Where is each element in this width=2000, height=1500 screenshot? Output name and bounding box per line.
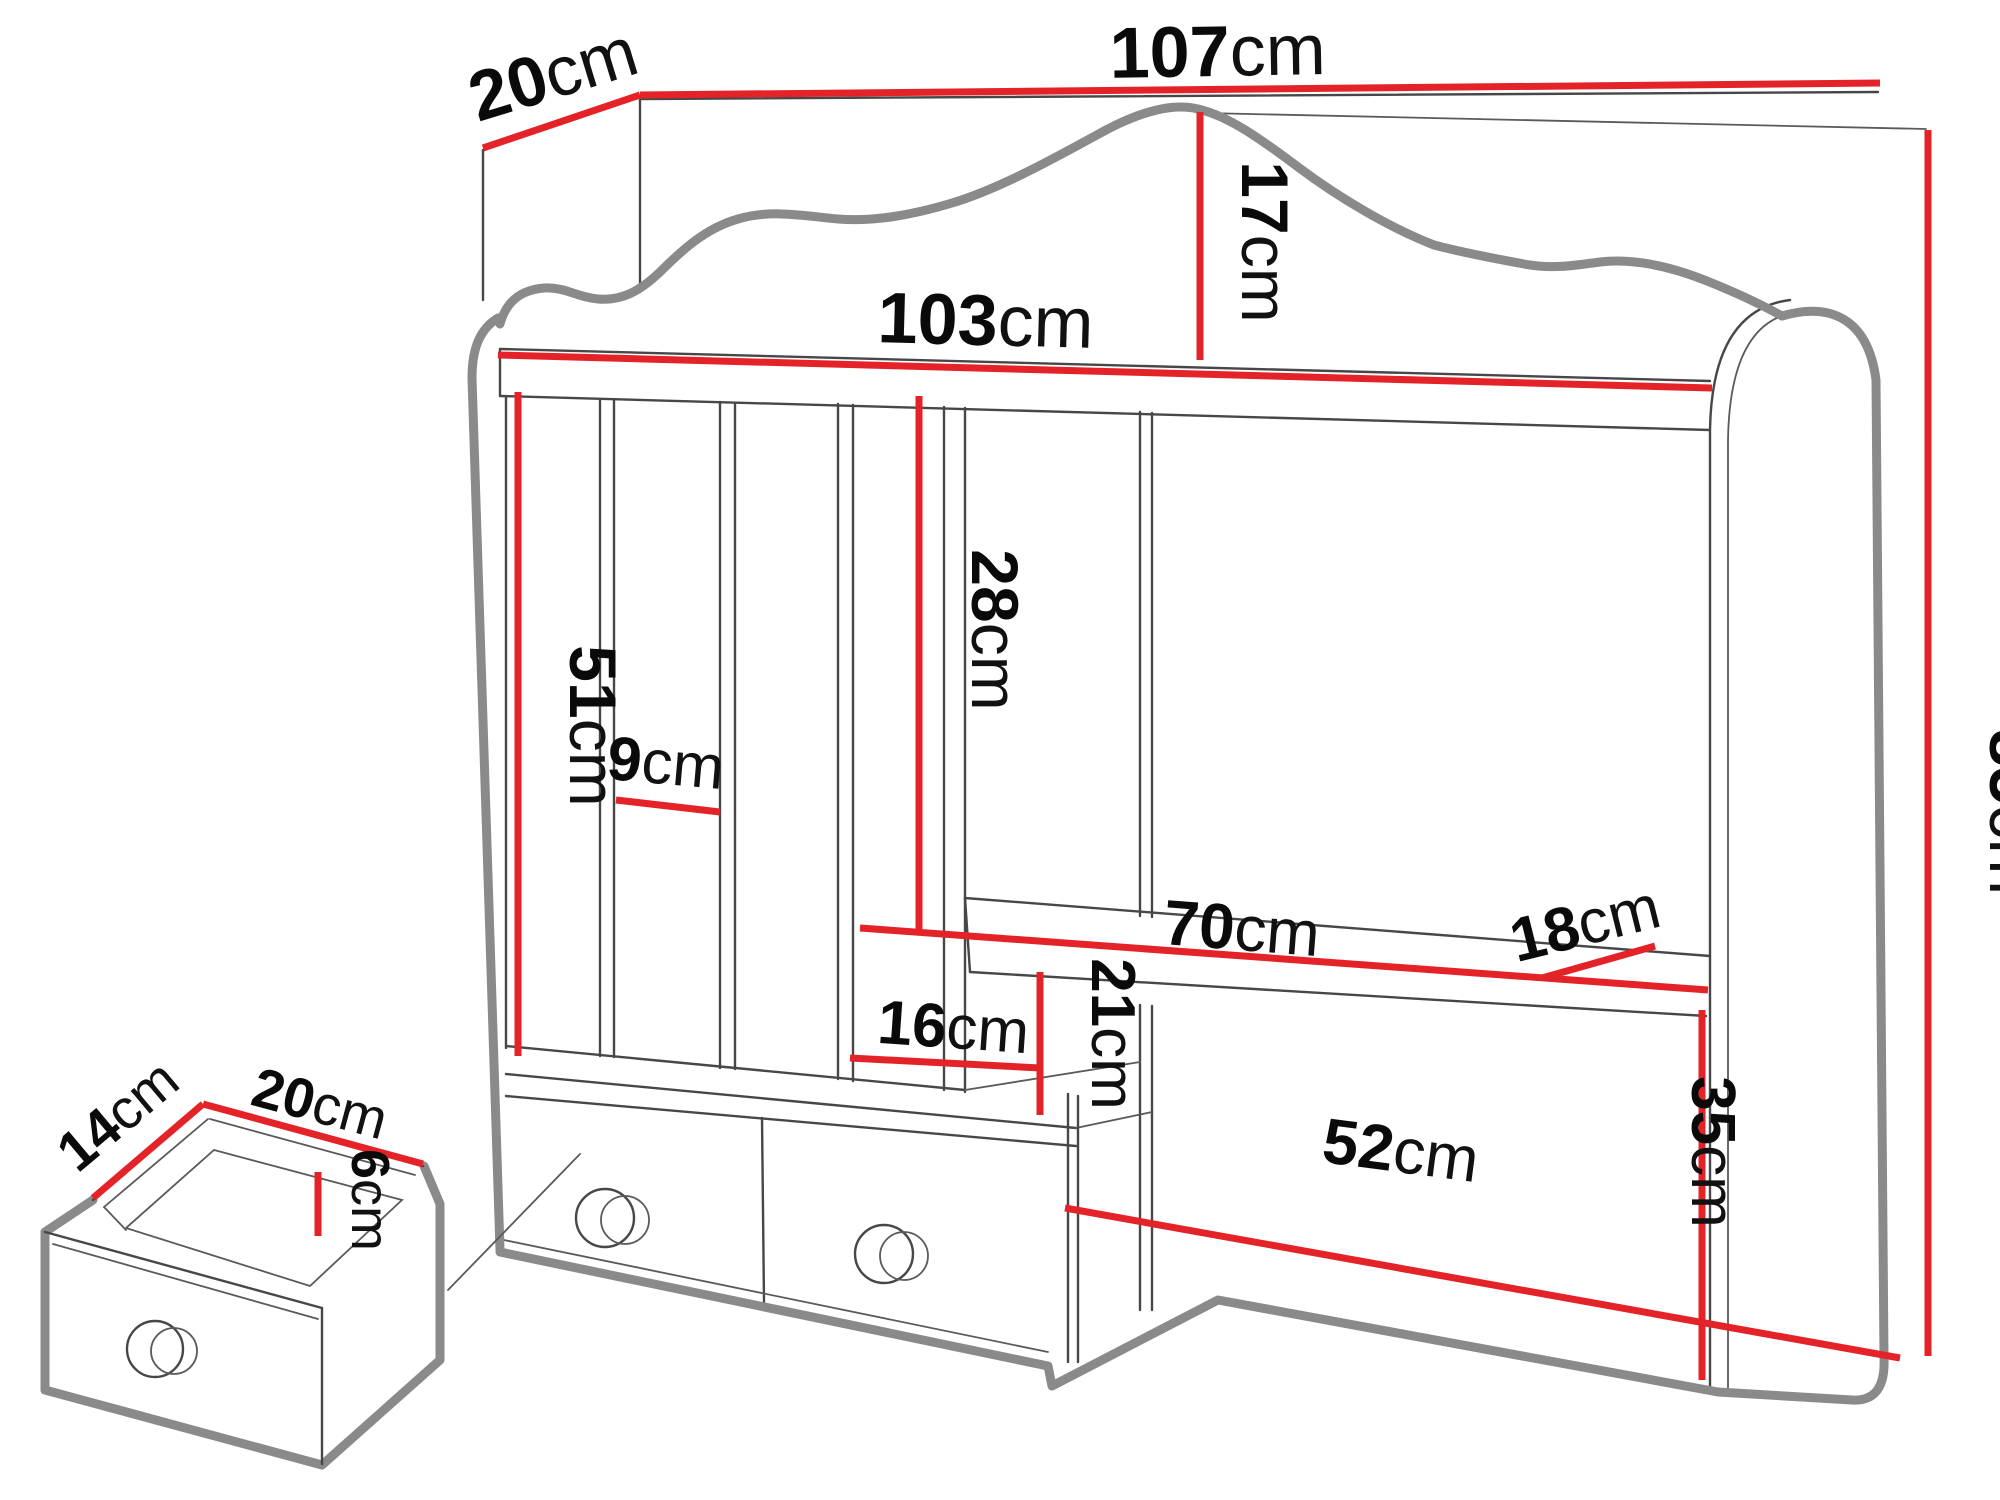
drawer-bottom-edge xyxy=(504,1240,1048,1352)
dim-label-lower-opening-height: 35cm xyxy=(1678,1076,1747,1228)
dim-label-upper-opening-height: 28cm xyxy=(958,549,1032,710)
drawer-detail-front-rim xyxy=(53,1244,318,1319)
dimension-labels: 20cm 107cm 17cm 103cm 51cm 9cm 28cm 70cm… xyxy=(45,10,2000,1251)
magazine-slot-dividers xyxy=(506,398,1152,1310)
dim-label-total-height: 85cm xyxy=(1975,729,2000,895)
dim-label-top-depth: 20cm xyxy=(460,12,647,137)
dim-label-lower-opening-width: 52cm xyxy=(1319,1104,1484,1196)
shelf-front-edge xyxy=(500,396,1710,430)
crest-outline xyxy=(500,107,1782,324)
right-panel-inner-edges xyxy=(1710,300,1798,1396)
drawer-divider xyxy=(762,1118,764,1302)
hutch-drawing: 20cm 107cm 17cm 103cm 51cm 9cm 28cm 70cm… xyxy=(0,0,2000,1500)
callout-line xyxy=(448,1154,580,1290)
slot-floor-and-cubby xyxy=(506,1046,1152,1128)
dim-label-shelf-width: 103cm xyxy=(877,278,1095,364)
dim-label-cubby-width: 16cm xyxy=(875,988,1031,1067)
dim-line-52-opening-width xyxy=(1065,1208,1900,1358)
bottom-outline xyxy=(500,1252,1718,1392)
drawer-detail-cavity-corner xyxy=(104,1207,126,1230)
left-drawer-knob xyxy=(576,1189,649,1247)
dim-label-cubby-height: 21cm xyxy=(1078,958,1147,1110)
right-drawer-knob xyxy=(855,1225,928,1283)
hutch-back-panel-edges xyxy=(483,92,1926,300)
drawer-detail-front-top-edge xyxy=(45,1232,322,1308)
dimension-diagram: 20cm 107cm 17cm 103cm 51cm 9cm 28cm 70cm… xyxy=(0,0,2000,1500)
drawer-section xyxy=(504,1094,1078,1362)
right-panel-outline xyxy=(1718,311,1884,1400)
dim-line-9-slot-width xyxy=(616,800,720,812)
dim-label-middle-shelf-width: 70cm xyxy=(1161,886,1323,970)
drawer-detail-knob xyxy=(127,1321,197,1377)
dim-label-crest-height: 17cm xyxy=(1228,161,1302,322)
right-inner-edge xyxy=(1710,300,1790,1392)
dim-line-103-shelf xyxy=(498,355,1712,388)
right-inner-corner xyxy=(1728,312,1798,1396)
dim-label-drawer-inner-height: 6cm xyxy=(340,1149,400,1251)
dim-label-drawer-depth: 14cm xyxy=(45,1047,190,1183)
dim-label-slot-width: 9cm xyxy=(604,724,727,803)
dim-label-total-width: 107cm xyxy=(1109,10,1326,94)
peak-extension-line xyxy=(1205,113,1926,129)
shelf-top-edge xyxy=(500,349,1710,381)
left-panel-outline xyxy=(472,318,500,1250)
dim-label-middle-shelf-depth: 18cm xyxy=(1503,872,1667,976)
